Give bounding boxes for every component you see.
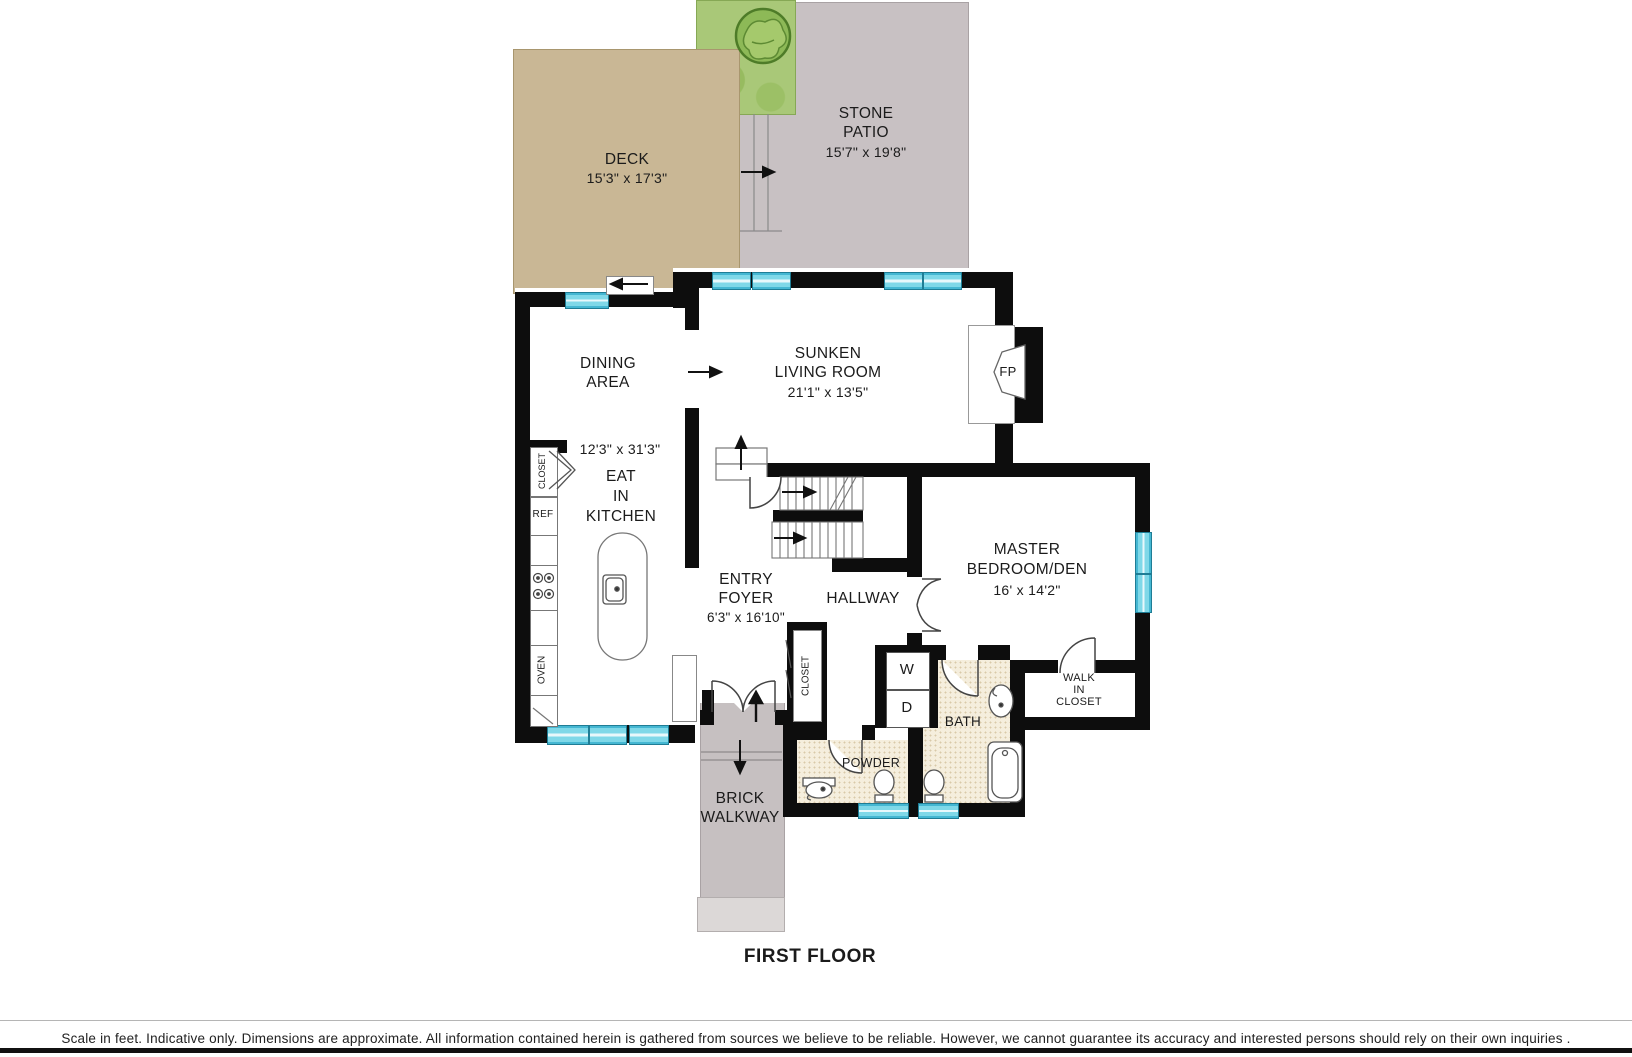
refrigerator-label: REF — [533, 509, 554, 520]
walkway-label-2: WALKWAY — [700, 809, 779, 827]
living-opening-arrow — [688, 367, 721, 377]
disclaimer-text: Scale in feet. Indicative only. Dimensio… — [61, 1031, 1570, 1046]
wic-label-1: WALK — [1063, 672, 1095, 684]
stone-patio-label-2: PATIO — [843, 124, 889, 142]
powder-toilet-icon — [874, 770, 894, 802]
living-label-2: LIVING ROOM — [775, 364, 882, 382]
master-label-2: BEDROOM/DEN — [967, 561, 1087, 579]
master-double-door — [917, 579, 941, 631]
walkway-steps — [701, 752, 782, 760]
stone-patio-dims: 15'7" x 19'8" — [826, 144, 907, 160]
walkway-label-1: BRICK — [716, 790, 765, 808]
dryer-label: D — [901, 699, 912, 716]
disclaimer-top-line — [0, 1020, 1632, 1021]
stove-burners-icon — [534, 574, 554, 599]
kitchen-label-1: EAT — [606, 468, 636, 486]
stone-patio-label-1: STONE — [839, 105, 894, 123]
bath-sink-icon — [989, 685, 1013, 717]
powder-label: POWDER — [842, 756, 900, 770]
foyer-closet-label: CLOSET — [801, 656, 812, 696]
hallway-label: HALLWAY — [826, 590, 899, 608]
oven-label: OVEN — [537, 656, 548, 684]
living-dims: 21'1" x 13'5" — [788, 384, 869, 400]
bath-door-arc — [942, 660, 978, 696]
wic-label-3: CLOSET — [1056, 696, 1102, 708]
bath-toilet-icon — [924, 770, 944, 802]
floor-plan-title: FIRST FLOOR — [744, 946, 876, 968]
stair-door-arc — [750, 477, 781, 508]
kitchen-closet-door — [549, 451, 575, 489]
bathtub-icon — [988, 742, 1022, 802]
disclaimer-bottom-bar — [0, 1048, 1632, 1053]
kitchen-label-2: IN — [613, 488, 629, 506]
washer-label: W — [900, 661, 914, 678]
deck-label: DECK — [605, 151, 649, 169]
wic-door-arc — [1060, 638, 1095, 673]
deck-dims: 15'3" x 17'3" — [587, 170, 668, 186]
tree-icon — [736, 9, 790, 63]
powder-sink-icon — [803, 778, 835, 800]
kitchen-label-3: KITCHEN — [586, 508, 656, 526]
dining-label-1: DINING — [580, 355, 636, 373]
master-label-1: MASTER — [994, 541, 1060, 559]
plan-linework — [0, 0, 1632, 1057]
entry-french-doors — [712, 681, 775, 712]
counter-diagonal — [533, 708, 553, 724]
foyer-closet-door-lines — [786, 640, 791, 698]
dining-label-2: AREA — [586, 374, 629, 392]
living-label-1: SUNKEN — [795, 345, 861, 363]
fireplace-label: FP — [999, 364, 1016, 379]
deck-door-arrow — [611, 279, 648, 289]
entry-label-1: ENTRY — [719, 571, 773, 589]
floor-plan: DECK 15'3" x 17'3" STONE PATIO 15'7" x 1… — [0, 0, 1632, 1057]
kitchen-closet-label: CLOSET — [537, 453, 547, 489]
master-dims: 16' x 14'2" — [993, 582, 1060, 598]
patio-step-arrow — [741, 167, 774, 177]
kitchen-dims: 12'3" x 31'3" — [580, 441, 661, 457]
bath-label: BATH — [945, 714, 981, 729]
wic-label-2: IN — [1073, 684, 1085, 696]
entry-label-2: FOYER — [719, 590, 774, 608]
walkway-arrow — [735, 740, 745, 773]
entry-dims: 6'3" x 16'10" — [707, 610, 785, 625]
